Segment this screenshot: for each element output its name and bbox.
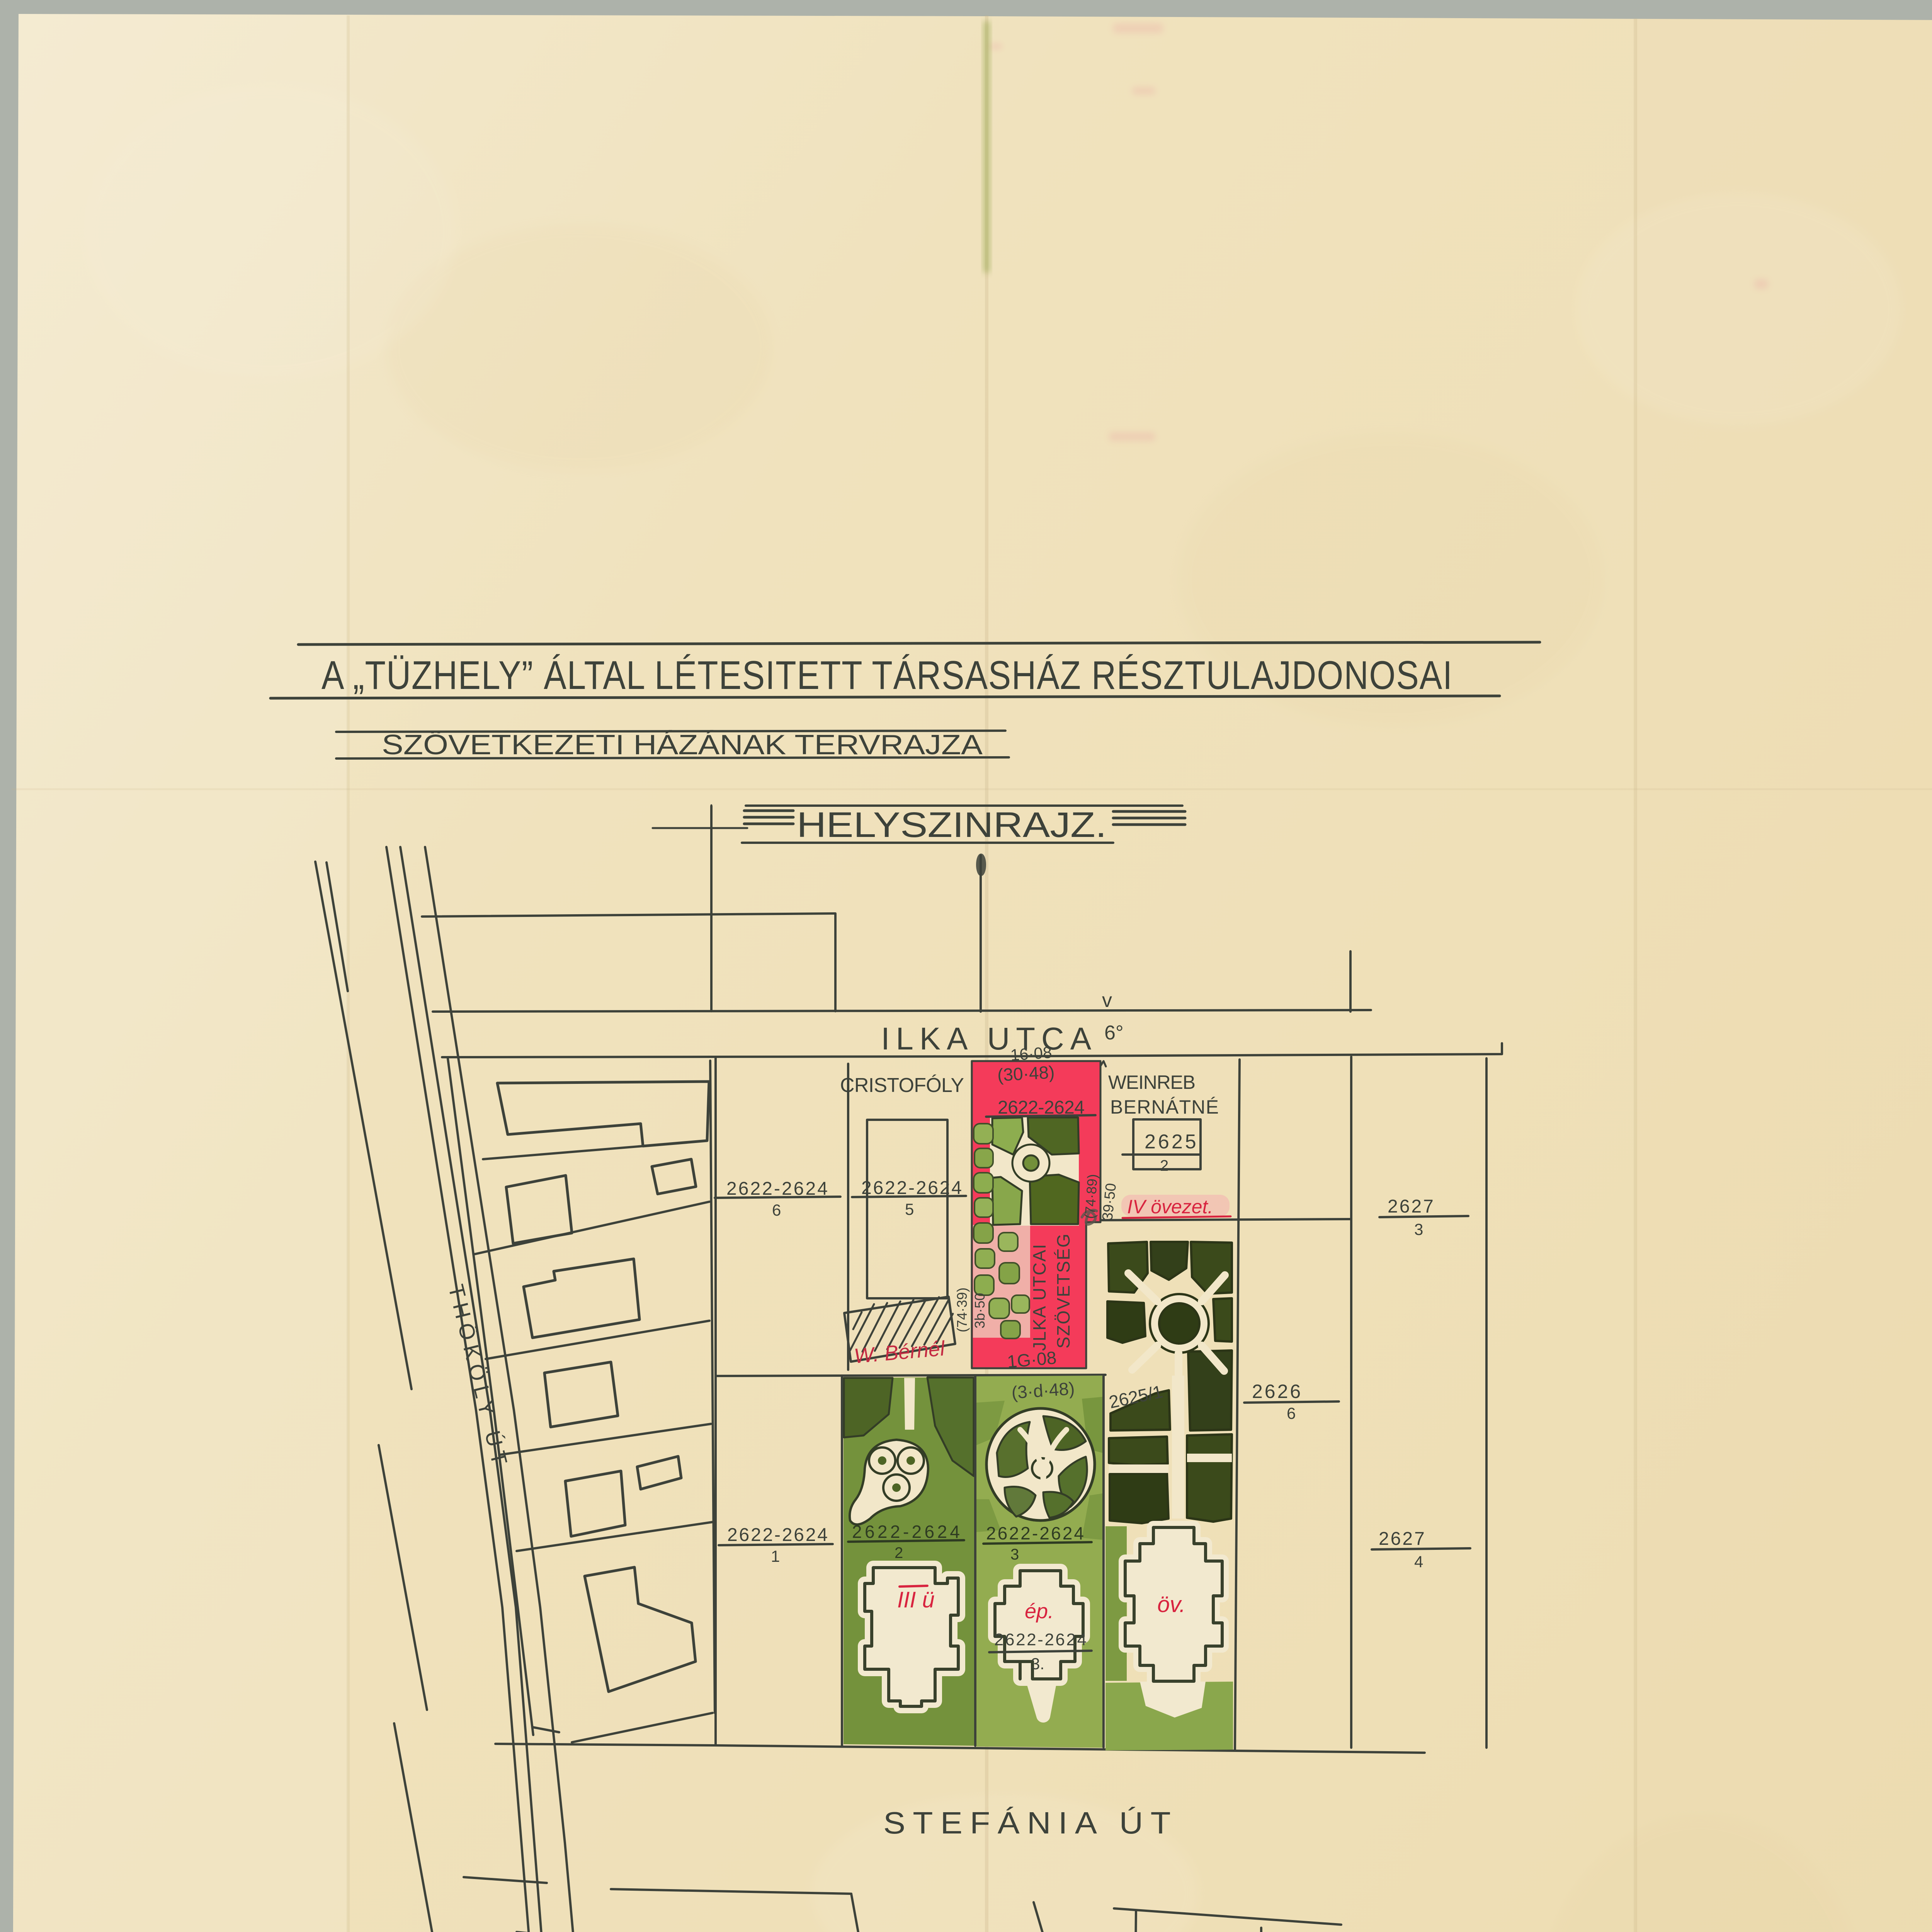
svg-text:3b·50: 3b·50 [972,1293,988,1328]
svg-text:2622-2624: 2622-2624 [727,1525,828,1545]
svg-text:6: 6 [772,1201,781,1219]
svg-text:ILKA UTCA: ILKA UTCA [881,1021,1097,1056]
svg-text:(30·48): (30·48) [997,1062,1055,1085]
svg-text:SZÖVETKEZETI HÁZÁNAK TERVRAJZA: SZÖVETKEZETI HÁZÁNAK TERVRAJZA [382,730,983,760]
svg-text:2: 2 [1160,1157,1168,1174]
svg-text:HELYSZINRAJZ.: HELYSZINRAJZ. [797,805,1107,845]
svg-text:2626: 2626 [1252,1381,1303,1402]
svg-text:6: 6 [1287,1404,1296,1422]
svg-text:3: 3 [1010,1546,1019,1563]
svg-text:(74·89): (74·89) [1082,1173,1100,1219]
svg-text:STEFÁNIA ÚT: STEFÁNIA ÚT [883,1806,1178,1840]
svg-text:BERNÁTNÉ: BERNÁTNÉ [1110,1096,1221,1118]
svg-text:3: 3 [1414,1220,1423,1238]
svg-text:SZÖVETSÉG: SZÖVETSÉG [1053,1233,1073,1349]
svg-text:2627: 2627 [1388,1196,1435,1217]
svg-text:2: 2 [895,1544,903,1561]
svg-text:2622-2624: 2622-2624 [986,1523,1084,1543]
svg-text:2625: 2625 [1145,1131,1199,1153]
svg-text:2622-2624: 2622-2624 [994,1630,1087,1649]
svg-text:III ü: III ü [897,1587,935,1612]
svg-text:A „TÜZHELY” ÁLTAL LÉTESITETT T: A „TÜZHELY” ÁLTAL LÉTESITETT TÁRSASHÁZ R… [321,653,1453,698]
svg-text:CRISTOFÓLY: CRISTOFÓLY [840,1074,966,1097]
svg-text:JLKA UTCAI: JLKA UTCAI [1029,1243,1049,1351]
svg-text:ép.: ép. [1025,1600,1054,1623]
svg-text:1: 1 [771,1547,780,1565]
svg-text:2627: 2627 [1379,1529,1426,1549]
svg-text:2622-2624: 2622-2624 [852,1522,960,1542]
svg-text:6°: 6° [1104,1022,1124,1044]
svg-text:(74·39): (74·39) [954,1287,970,1332]
svg-text:WEINREB: WEINREB [1108,1071,1198,1093]
svg-text:4: 4 [1414,1553,1423,1571]
svg-text:IV övezet.: IV övezet. [1127,1196,1213,1218]
svg-text:öv.: öv. [1157,1592,1185,1617]
svg-text:v: v [1102,989,1112,1012]
svg-text:3.: 3. [1031,1655,1044,1673]
svg-text:5: 5 [905,1200,914,1218]
